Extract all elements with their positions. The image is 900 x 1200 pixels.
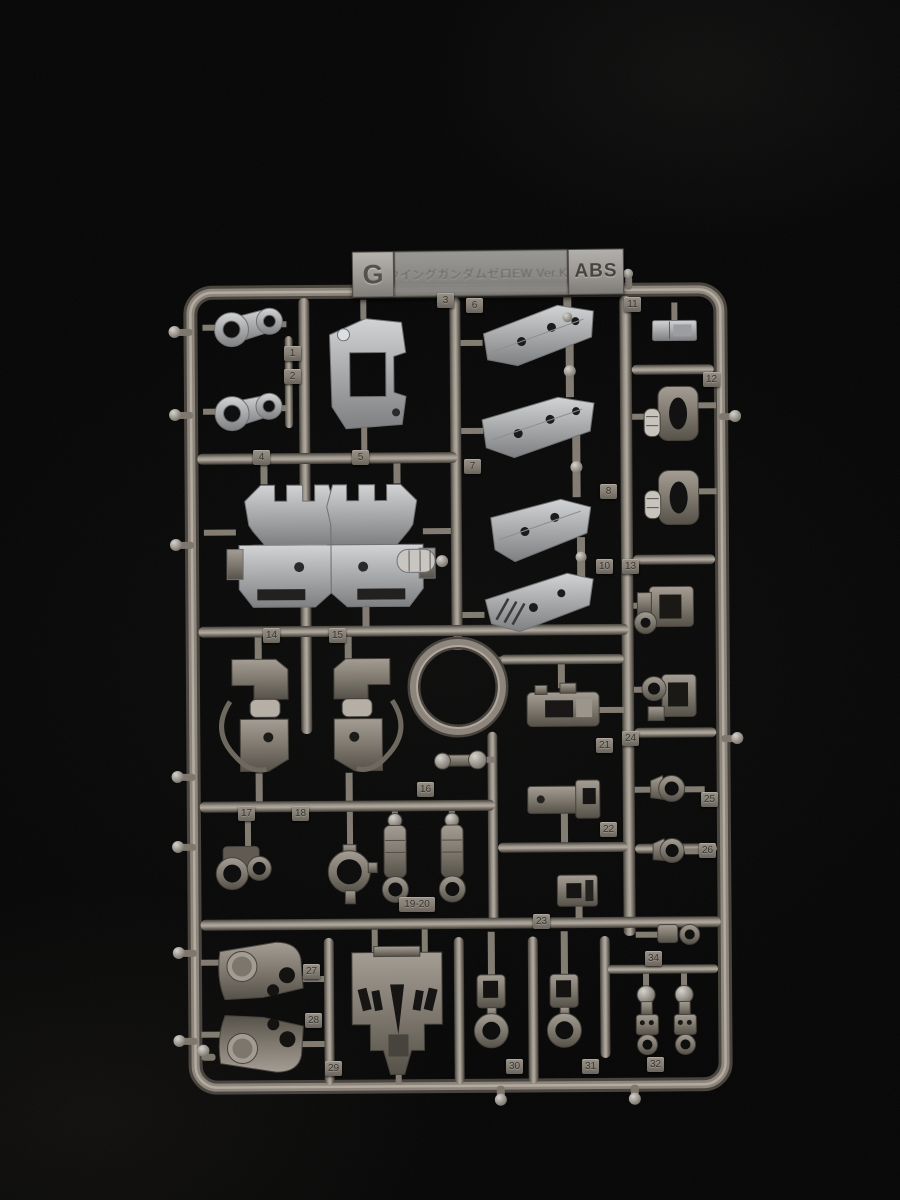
part-number-tab-32: 32 [647,1057,664,1072]
part-number-tab-10: 10 [596,559,613,574]
part-number-tab-29: 29 [325,1061,342,1076]
part-number-tab-34: 34 [645,951,662,966]
sprue-runner: G ウイングガンダムゼロEW Ver.Ka ABS 1 2 3 6 11 4 5… [0,0,900,1200]
part-number-tab-5: 5 [352,450,369,465]
part-19-cylinder [382,813,409,902]
part-number-tab-12: 12 [703,372,720,387]
material-marking: ABS [568,248,625,295]
part-number-tab-4: 4 [253,450,270,465]
part-number-tab-7: 7 [464,459,481,474]
part-number-tab-1: 1 [284,346,301,361]
part-number-tab-31: 31 [582,1059,599,1074]
part-number-tab-25: 25 [701,792,718,807]
part-number-tab-11: 11 [624,297,641,312]
sprue-graphic [0,0,900,1200]
part-number-tab-19-20: 19-20 [399,897,435,912]
part-20-cylinder [439,813,466,902]
part-number-tab-3: 3 [437,293,454,308]
part-number-tab-18: 18 [292,806,309,821]
part-number-tab-17: 17 [238,806,255,821]
part-11-box [652,320,696,340]
part-number-tab-8: 8 [600,484,617,499]
part-number-tab-28: 28 [305,1013,322,1028]
fabric-texture [0,0,900,1200]
part-number-tab-22: 22 [600,822,617,837]
runner-letter: G [352,251,395,298]
photo: G ウイングガンダムゼロEW Ver.Ka ABS 1 2 3 6 11 4 5… [0,0,900,1200]
part-number-tab-2: 2 [284,369,301,384]
part-number-tab-23: 23 [533,914,550,929]
part-number-tab-13: 13 [622,559,639,574]
part-number-tab-24: 24 [622,731,639,746]
part-number-tab-30: 30 [506,1059,523,1074]
part-number-tab-6: 6 [466,298,483,313]
runner-label-plate: G ウイングガンダムゼロEW Ver.Ka ABS [352,248,625,297]
part-number-tab-15: 15 [329,628,346,643]
part-28-plate [219,1015,304,1073]
part-23-socket [557,875,597,906]
part-number-tab-14: 14 [263,628,280,643]
part-27-plate [219,942,304,1000]
part-number-tab-16: 16 [417,782,434,797]
part-number-tab-21: 21 [596,738,613,753]
part-32-balljoint [636,986,658,1055]
kit-title-embossed: ウイングガンダムゼロEW Ver.Ka [394,249,569,297]
part-number-tab-27: 27 [303,964,320,979]
part-number-tab-26: 26 [699,843,716,858]
part-33-balljoint [674,985,696,1054]
